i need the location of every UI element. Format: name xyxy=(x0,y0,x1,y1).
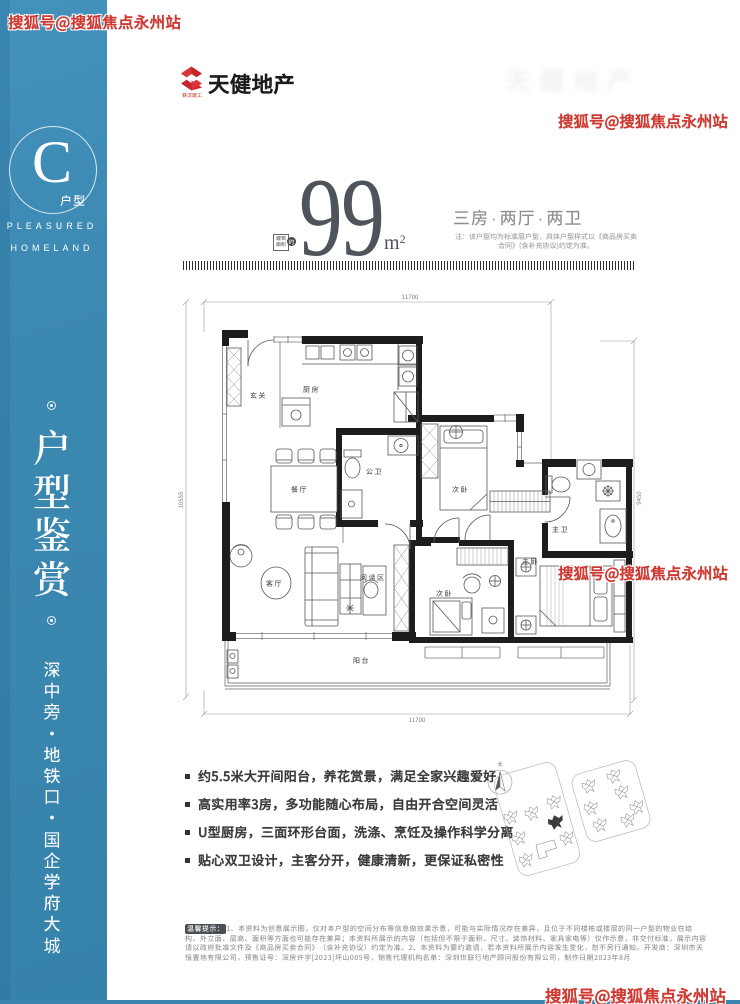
svg-text:10555: 10555 xyxy=(176,491,185,509)
svg-text:阳台: 阳台 xyxy=(353,656,370,666)
svg-text:9450: 9450 xyxy=(634,491,643,505)
svg-text:主卫: 主卫 xyxy=(552,525,569,535)
svg-text:11700: 11700 xyxy=(409,715,427,724)
svg-text:公卫: 公卫 xyxy=(366,467,383,477)
svg-text:主卧: 主卧 xyxy=(522,557,539,567)
svg-text:餐厅: 餐厅 xyxy=(291,485,308,495)
svg-text:北: 北 xyxy=(497,761,502,768)
svg-text:阅读区: 阅读区 xyxy=(360,573,386,583)
svg-text:次卧: 次卧 xyxy=(436,589,453,599)
svg-text:客厅: 客厅 xyxy=(266,579,283,589)
svg-text:11700: 11700 xyxy=(402,292,420,301)
svg-text:次卧: 次卧 xyxy=(452,485,469,495)
svg-text:厨房: 厨房 xyxy=(303,385,320,395)
svg-text:玄关: 玄关 xyxy=(250,391,267,401)
